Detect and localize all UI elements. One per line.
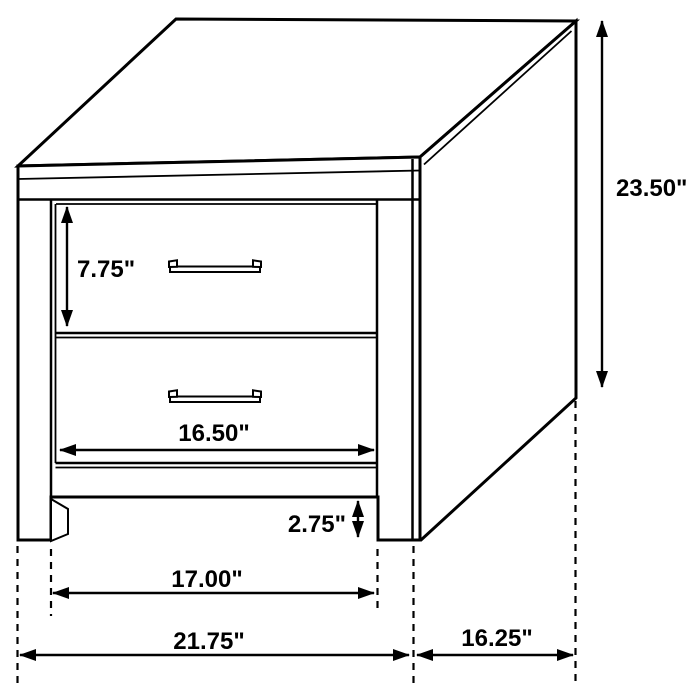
left-leg-side-face [51, 499, 68, 541]
dim-drawer-width-label: 16.50" [178, 420, 249, 447]
dim-drawer-height-label: 7.75" [77, 256, 135, 283]
dim-depth: 16.25" [417, 625, 573, 655]
dim-height: 23.50" [602, 21, 687, 387]
dim-height-label: 23.50" [616, 175, 687, 202]
dim-overall-width-label: 21.75" [173, 628, 244, 655]
dim-leg-clearance-label: 2.75" [288, 511, 346, 538]
dimension-diagram: 23.50" 7.75" 16.50" 2.75" 17.00" 21.75" [0, 0, 700, 700]
nightstand-diagram-canvas: 23.50" 7.75" 16.50" 2.75" 17.00" 21.75" [0, 0, 700, 700]
dim-depth-label: 16.25" [461, 625, 532, 652]
front-face [18, 157, 420, 540]
dim-leg-clearance: 2.75" [288, 501, 358, 538]
dim-inner-width-label: 17.00" [171, 566, 242, 593]
dim-inner-width: 17.00" [53, 566, 374, 593]
dim-overall-width: 21.75" [20, 628, 409, 655]
